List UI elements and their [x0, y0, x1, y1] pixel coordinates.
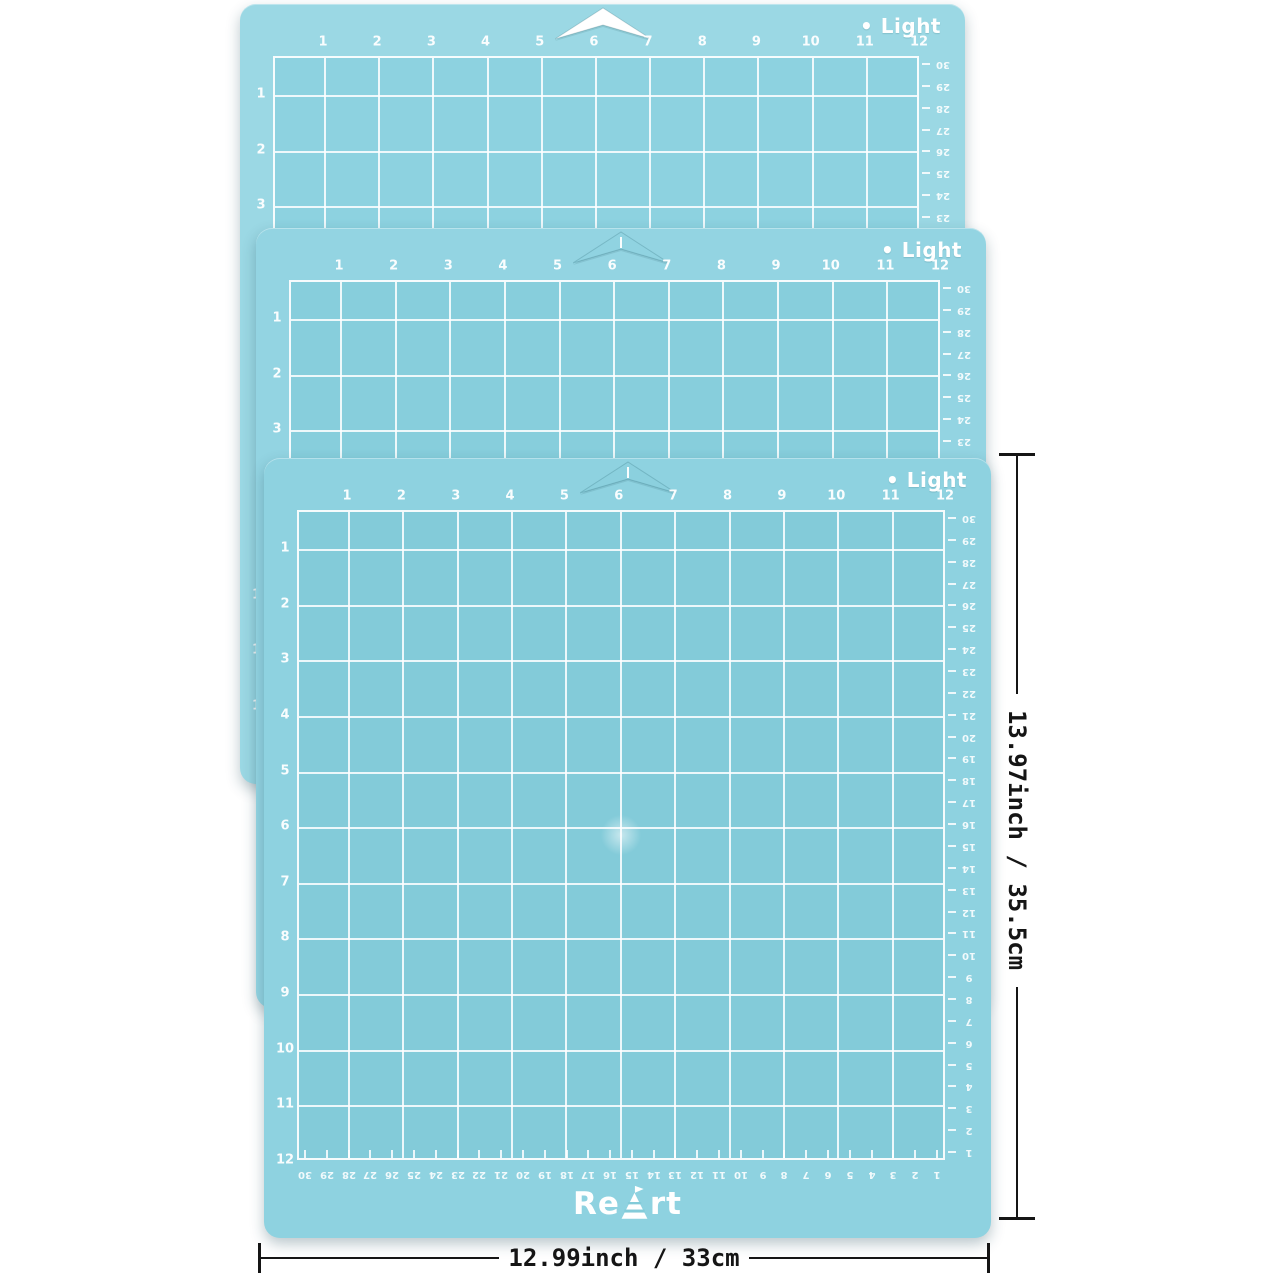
ruler-tick-bottom: [413, 1150, 415, 1158]
ruler-tick-right: [948, 998, 956, 1000]
grid-line-h: [299, 938, 943, 940]
grid-line-h: [299, 994, 943, 996]
grid-line-v: [729, 512, 731, 1158]
ruler-tick-right: [922, 63, 930, 65]
inch-label-side: 11: [276, 1098, 294, 1111]
ruler-tick-right: [948, 1151, 956, 1153]
ruler-tick-right: [948, 932, 956, 934]
cm-label-right: 23: [936, 212, 950, 222]
inch-label-top: 4: [498, 260, 507, 273]
cm-label-right: 3: [966, 1103, 973, 1113]
cutting-mat-front: • Light123456789101112123456789101112302…: [264, 458, 991, 1238]
inch-label-top: 3: [444, 260, 453, 273]
inch-label-top: 3: [427, 36, 436, 49]
ruler-tick-right: [948, 757, 956, 759]
brand-logo-text: Re: [573, 1189, 620, 1220]
hang-notch: [555, 5, 651, 43]
cm-label-bottom: 9: [759, 1169, 766, 1179]
cm-label-right: 28: [936, 103, 950, 113]
ruler-tick-right: [943, 396, 951, 398]
ruler-tick-right: [948, 779, 956, 781]
inch-label-side: 5: [280, 764, 289, 777]
inch-label-top: 9: [752, 36, 761, 49]
cm-label-bottom: 18: [560, 1169, 574, 1179]
cm-label-bottom: 12: [690, 1169, 704, 1179]
inch-label-side: 3: [256, 199, 265, 212]
cm-label-right: 9: [966, 972, 973, 982]
inch-label-top: 8: [723, 490, 732, 503]
inch-label-top: 12: [910, 36, 928, 49]
inch-label-side: 4: [280, 708, 289, 721]
inch-label-top: 8: [698, 36, 707, 49]
cm-label-right: 23: [957, 436, 971, 446]
cm-label-right: 19: [962, 753, 976, 763]
cm-label-bottom: 17: [581, 1169, 595, 1179]
inch-label-top: 4: [506, 490, 515, 503]
ruler-tick-right: [922, 172, 930, 174]
ruler-tick-bottom: [871, 1150, 873, 1158]
cm-label-bottom: 5: [846, 1169, 853, 1179]
cm-label-right: 11: [962, 928, 976, 938]
inch-label-top: 11: [876, 260, 894, 273]
cm-label-right: 8: [966, 994, 973, 1004]
ruler-tick-right: [948, 648, 956, 650]
cm-label-right: 6: [966, 1038, 973, 1048]
cm-label-bottom: 2: [912, 1169, 919, 1179]
cm-label-right: 25: [936, 168, 950, 178]
ruler-tick-right: [943, 374, 951, 376]
ruler-tick-right: [948, 801, 956, 803]
cm-label-bottom: 1: [934, 1169, 941, 1179]
cm-label-bottom: 23: [451, 1169, 465, 1179]
cm-label-bottom: 27: [363, 1169, 377, 1179]
hang-notch-icon: [573, 229, 669, 267]
cm-label-bottom: 28: [342, 1169, 356, 1179]
grid-line-v: [402, 512, 404, 1158]
cm-label-right: 29: [962, 535, 976, 545]
ruler-tick-bottom: [892, 1150, 894, 1158]
ruler-tick-right: [948, 889, 956, 891]
inch-label-side: 10: [276, 1042, 294, 1055]
inch-label-side: 8: [280, 931, 289, 944]
height-dimension-label: 13.97inch / 35.5cm: [1003, 710, 1031, 970]
cm-label-right: 26: [962, 600, 976, 610]
dimension-line: [749, 1257, 987, 1259]
ruler-tick-bottom: [631, 1150, 633, 1158]
ruler-tick-right: [922, 129, 930, 131]
inch-label-top: 7: [644, 36, 653, 49]
dimension-cap: [987, 1243, 990, 1273]
grid-line-v: [783, 512, 785, 1158]
cm-label-right: 25: [962, 622, 976, 632]
inch-label-top: 12: [931, 260, 949, 273]
cm-label-bottom: 3: [890, 1169, 897, 1179]
cm-label-bottom: 30: [298, 1169, 312, 1179]
cm-label-right: 21: [962, 710, 976, 720]
cm-label-right: 10: [962, 950, 976, 960]
inch-label-side: 1: [256, 88, 265, 101]
cm-label-bottom: 6: [825, 1169, 832, 1179]
ruler-tick-bottom: [849, 1150, 851, 1158]
cm-label-bottom: 20: [516, 1169, 530, 1179]
inch-label-top: 5: [553, 260, 562, 273]
inch-label-top: 2: [397, 490, 406, 503]
inch-label-side: 7: [280, 875, 289, 888]
ruler-tick-bottom: [478, 1150, 480, 1158]
cm-label-bottom: 22: [472, 1169, 486, 1179]
cm-label-right: 22: [962, 688, 976, 698]
inch-label-top: 12: [936, 490, 954, 503]
grid-line-h: [299, 1050, 943, 1052]
cm-label-right: 20: [962, 732, 976, 742]
ruler-tick-bottom: [696, 1150, 698, 1158]
inch-label-top: 3: [451, 490, 460, 503]
inch-label-side: 12: [276, 1154, 294, 1167]
ruler-tick-right: [948, 1085, 956, 1087]
cm-label-right: 28: [962, 557, 976, 567]
cm-label-bottom: 25: [407, 1169, 421, 1179]
inch-label-top: 10: [802, 36, 820, 49]
cm-label-right: 2: [966, 1125, 973, 1135]
ruler-tick-right: [922, 85, 930, 87]
ruler-tick-bottom: [435, 1150, 437, 1158]
cm-label-right: 26: [957, 370, 971, 380]
inch-label-top: 9: [772, 260, 781, 273]
hang-notch-icon: [580, 459, 676, 497]
height-dimension: 13.97inch / 35.5cm: [999, 453, 1035, 1220]
ruler-tick-bottom: [369, 1150, 371, 1158]
inch-label-top: 2: [373, 36, 382, 49]
cm-label-bottom: 15: [625, 1169, 639, 1179]
ruler-tick-right: [948, 845, 956, 847]
center-mark: [598, 812, 644, 858]
ruler-tick-bottom: [348, 1150, 350, 1158]
cm-label-right: 30: [936, 59, 950, 69]
dimension-line: [261, 1257, 499, 1259]
cm-label-right: 13: [962, 885, 976, 895]
inch-label-side: 2: [256, 143, 265, 156]
ruler-tick-bottom: [914, 1150, 916, 1158]
inch-label-top: 7: [662, 260, 671, 273]
cm-label-right: 25: [957, 392, 971, 402]
ruler-tick-bottom: [566, 1150, 568, 1158]
inch-label-top: 6: [608, 260, 617, 273]
ruler-tick-right: [943, 418, 951, 420]
cm-label-bottom: 14: [647, 1169, 661, 1179]
cm-label-bottom: 4: [868, 1169, 875, 1179]
inch-label-top: 1: [318, 36, 327, 49]
ruler-tick-right: [922, 216, 930, 218]
ruler-tick-bottom: [500, 1150, 502, 1158]
dimension-cap: [999, 1217, 1035, 1220]
ruler-tick-right: [943, 440, 951, 442]
ruler-tick-bottom: [762, 1150, 764, 1158]
dimension-line: [1016, 456, 1018, 694]
ruler-tick-bottom: [783, 1150, 785, 1158]
ruler-tick-bottom: [522, 1150, 524, 1158]
ruler-tick-right: [948, 823, 956, 825]
inch-label-top: 1: [334, 260, 343, 273]
ruler-tick-right: [948, 714, 956, 716]
ruler-tick-bottom: [827, 1150, 829, 1158]
cm-label-right: 12: [962, 907, 976, 917]
ruler-tick-right: [922, 194, 930, 196]
cm-label-right: 30: [957, 283, 971, 293]
ruler-tick-right: [948, 517, 956, 519]
cm-label-right: 16: [962, 819, 976, 829]
ruler-tick-right: [948, 1042, 956, 1044]
cm-label-right: 5: [966, 1060, 973, 1070]
inch-label-top: 10: [822, 260, 840, 273]
cm-label-bottom: 24: [429, 1169, 443, 1179]
inch-label-top: 8: [717, 260, 726, 273]
ruler-tick-right: [943, 309, 951, 311]
dimension-line: [1016, 987, 1018, 1217]
ruler-tick-right: [922, 107, 930, 109]
brand-logo: Rert: [573, 1184, 682, 1220]
ruler-tick-right: [948, 539, 956, 541]
cm-label-right: 29: [936, 81, 950, 91]
ruler-tick-right: [943, 353, 951, 355]
cm-label-right: 26: [936, 146, 950, 156]
inch-label-side: 3: [280, 653, 289, 666]
cm-label-right: 7: [966, 1016, 973, 1026]
grid-line-v: [565, 512, 567, 1158]
cm-label-bottom: 10: [734, 1169, 748, 1179]
cm-label-right: 24: [957, 414, 971, 424]
brand-logo-text: rt: [650, 1189, 682, 1220]
inch-label-side: 1: [280, 542, 289, 555]
cm-label-bottom: 7: [803, 1169, 810, 1179]
ruler-tick-right: [948, 1064, 956, 1066]
ruler-tick-bottom: [304, 1150, 306, 1158]
cm-label-right: 23: [962, 666, 976, 676]
cm-label-bottom: 29: [320, 1169, 334, 1179]
grid-line-h: [299, 1105, 943, 1107]
ruler-tick-right: [948, 911, 956, 913]
ruler-tick-bottom: [674, 1150, 676, 1158]
grid-line-v: [837, 512, 839, 1158]
hang-notch: [573, 229, 669, 267]
ruler-tick-bottom: [653, 1150, 655, 1158]
ruler-tick-bottom: [544, 1150, 546, 1158]
inch-label-side: 1: [272, 312, 281, 325]
grid-line-v: [892, 512, 894, 1158]
ruler-tick-right: [948, 1107, 956, 1109]
ruler-tick-bottom: [740, 1150, 742, 1158]
ruler-tick-right: [948, 736, 956, 738]
cm-label-right: 30: [962, 513, 976, 523]
cm-label-right: 4: [966, 1081, 973, 1091]
inch-label-top: 5: [535, 36, 544, 49]
cm-label-right: 24: [936, 190, 950, 200]
cm-label-right: 17: [962, 797, 976, 807]
hang-notch: [580, 459, 676, 497]
ruler-tick-right: [948, 976, 956, 978]
inch-label-top: 9: [777, 490, 786, 503]
product-dimension-illustration: • Light123456789101112123456789101112302…: [0, 0, 1275, 1275]
inch-label-side: 2: [280, 597, 289, 610]
ruler-tick-right: [948, 954, 956, 956]
ruler-tick-bottom: [805, 1150, 807, 1158]
ruler-tick-right: [948, 670, 956, 672]
inch-label-top: 5: [560, 490, 569, 503]
ruler-tick-bottom: [609, 1150, 611, 1158]
grid-line-v: [348, 512, 350, 1158]
width-dimension: 12.99inch / 33cm: [258, 1243, 990, 1273]
cm-label-bottom: 16: [603, 1169, 617, 1179]
cm-label-right: 29: [957, 305, 971, 315]
inch-label-top: 6: [614, 490, 623, 503]
ruler-tick-right: [943, 331, 951, 333]
cm-label-bottom: 13: [669, 1169, 683, 1179]
inch-label-side: 6: [280, 820, 289, 833]
ruler-tick-bottom: [326, 1150, 328, 1158]
ruler-tick-right: [948, 583, 956, 585]
cm-label-bottom: 26: [385, 1169, 399, 1179]
cm-label-right: 15: [962, 841, 976, 851]
ruler-tick-right: [948, 867, 956, 869]
grid-line-v: [674, 512, 676, 1158]
cm-label-bottom: 21: [494, 1169, 508, 1179]
cm-label-right: 27: [957, 349, 971, 359]
cm-label-right: 18: [962, 775, 976, 785]
inch-label-side: 9: [280, 987, 289, 1000]
ruler-tick-bottom: [718, 1150, 720, 1158]
ruler-tick-bottom: [457, 1150, 459, 1158]
ruler-tick-right: [943, 287, 951, 289]
cm-label-bottom: 11: [712, 1169, 726, 1179]
ruler-tick-right: [948, 1129, 956, 1131]
inch-label-top: 1: [342, 490, 351, 503]
hang-notch-icon: [555, 5, 651, 43]
inch-label-top: 2: [389, 260, 398, 273]
brand-logo-a-icon: [621, 1184, 649, 1220]
ruler-tick-right: [948, 626, 956, 628]
inch-label-top: 11: [856, 36, 874, 49]
inch-label-top: 7: [669, 490, 678, 503]
cm-label-right: 1: [966, 1147, 973, 1157]
cm-label-right: 14: [962, 863, 976, 873]
inch-label-side: 2: [272, 367, 281, 380]
ruler-tick-right: [948, 604, 956, 606]
grid-line-v: [457, 512, 459, 1158]
inch-label-top: 10: [827, 490, 845, 503]
cm-label-right: 27: [962, 579, 976, 589]
ruler-tick-right: [948, 1020, 956, 1022]
grid-line-v: [511, 512, 513, 1158]
cm-label-bottom: 8: [781, 1169, 788, 1179]
ruler-tick-right: [922, 150, 930, 152]
ruler-tick-bottom: [936, 1150, 938, 1158]
cm-label-right: 28: [957, 327, 971, 337]
ruler-tick-bottom: [587, 1150, 589, 1158]
grid-line-h: [299, 883, 943, 885]
inch-label-top: 6: [589, 36, 598, 49]
width-dimension-label: 12.99inch / 33cm: [508, 1244, 739, 1272]
ruler-tick-right: [948, 561, 956, 563]
cm-label-bottom: 19: [538, 1169, 552, 1179]
ruler-tick-bottom: [391, 1150, 393, 1158]
inch-label-top: 11: [882, 490, 900, 503]
inch-label-top: 4: [481, 36, 490, 49]
ruler-tick-right: [948, 692, 956, 694]
inch-label-side: 3: [272, 423, 281, 436]
cm-label-right: 27: [936, 125, 950, 135]
cm-label-right: 24: [962, 644, 976, 654]
